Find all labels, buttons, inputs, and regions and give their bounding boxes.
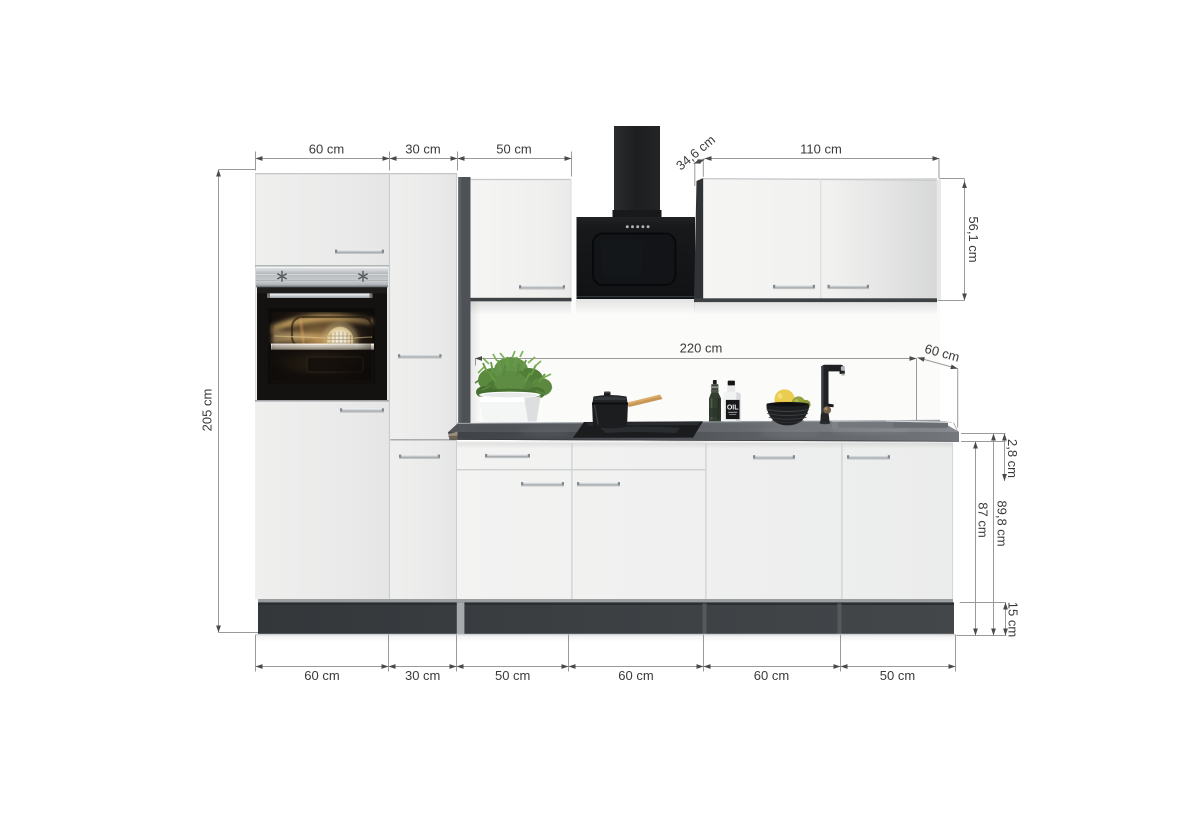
svg-text:87 cm: 87 cm [976, 502, 991, 537]
svg-text:15 cm: 15 cm [1006, 602, 1021, 637]
svg-text:89,8 cm: 89,8 cm [995, 500, 1010, 546]
svg-text:2,8 cm: 2,8 cm [1005, 439, 1020, 478]
svg-text:50 cm: 50 cm [880, 668, 915, 683]
svg-text:50 cm: 50 cm [496, 142, 531, 157]
svg-text:56,1 cm: 56,1 cm [966, 216, 981, 262]
svg-text:220 cm: 220 cm [680, 341, 723, 356]
svg-text:30 cm: 30 cm [405, 668, 440, 683]
svg-text:60 cm: 60 cm [309, 142, 344, 157]
svg-text:60 cm: 60 cm [304, 668, 339, 683]
svg-text:205 cm: 205 cm [200, 389, 215, 432]
svg-text:30 cm: 30 cm [405, 142, 440, 157]
svg-text:50 cm: 50 cm [495, 668, 530, 683]
svg-text:OIL: OIL [727, 405, 739, 412]
svg-text:60 cm: 60 cm [618, 668, 653, 683]
svg-text:60 cm: 60 cm [754, 668, 789, 683]
svg-text:110 cm: 110 cm [800, 142, 842, 157]
